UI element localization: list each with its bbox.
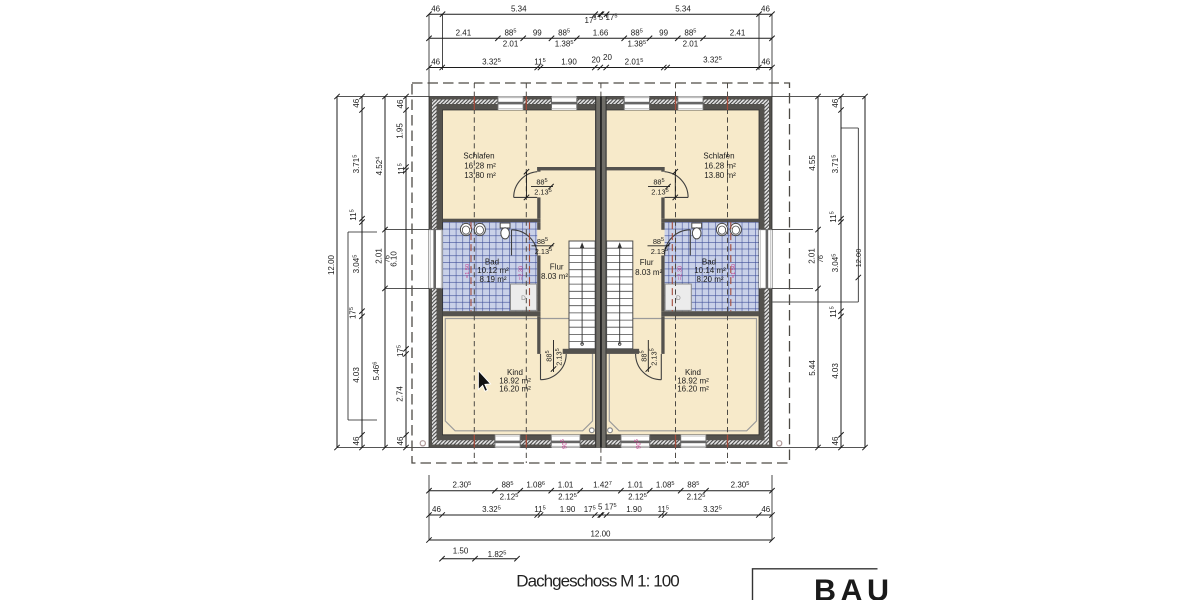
- svg-text:46: 46: [761, 58, 770, 67]
- svg-text:Flur: Flur: [640, 258, 654, 267]
- svg-text:2.01: 2.01: [503, 40, 519, 49]
- svg-text:Schlafen: Schlafen: [703, 152, 734, 161]
- svg-text:99: 99: [533, 28, 542, 37]
- svg-text:1.01: 1.01: [558, 480, 574, 489]
- svg-text:46: 46: [352, 98, 361, 107]
- svg-text:46: 46: [396, 436, 405, 445]
- svg-text:46: 46: [432, 505, 441, 514]
- svg-text:12.00: 12.00: [327, 254, 336, 275]
- svg-text:13.80 m²: 13.80 m²: [704, 171, 736, 180]
- svg-text:BAU: BAU: [814, 574, 894, 600]
- svg-text:2.74: 2.74: [396, 386, 405, 402]
- svg-text:8.03 m²: 8.03 m²: [635, 268, 662, 277]
- svg-text:2.41: 2.41: [456, 28, 472, 37]
- svg-text:=2.30: =2.30: [519, 266, 525, 280]
- svg-text:46: 46: [761, 5, 770, 14]
- svg-text:4.03: 4.03: [831, 363, 840, 379]
- svg-text:2.01: 2.01: [375, 248, 384, 264]
- svg-text:20: 20: [592, 56, 601, 65]
- svg-text:1.66: 1.66: [593, 28, 609, 37]
- svg-text:16.20 m²: 16.20 m²: [677, 385, 709, 394]
- svg-text:6.10: 6.10: [390, 251, 399, 267]
- svg-text:10.12 m²: 10.12 m²: [477, 266, 509, 275]
- svg-text:1.90: 1.90: [560, 505, 576, 514]
- svg-text:20: 20: [603, 53, 612, 62]
- svg-text:Dachgeschoss M 1: 100: Dachgeschoss M 1: 100: [516, 572, 679, 591]
- svg-text:1.90: 1.90: [626, 505, 642, 514]
- svg-text:4.55: 4.55: [808, 155, 817, 171]
- svg-text:Bad: Bad: [485, 257, 499, 266]
- svg-text:Flur: Flur: [550, 263, 564, 272]
- svg-text:2.01: 2.01: [683, 40, 699, 49]
- svg-text:99: 99: [659, 28, 668, 37]
- svg-text:46: 46: [831, 98, 840, 107]
- svg-text:12.00: 12.00: [590, 530, 611, 539]
- svg-text:16.20 m²: 16.20 m²: [499, 385, 531, 394]
- svg-text:5.44: 5.44: [808, 360, 817, 376]
- svg-text:46: 46: [352, 436, 361, 445]
- svg-text:16.28 m²: 16.28 m²: [704, 161, 736, 170]
- svg-text:1.95: 1.95: [396, 123, 405, 139]
- svg-text:8.19 m²: 8.19 m²: [479, 275, 506, 284]
- svg-text:76: 76: [818, 255, 825, 263]
- svg-text:8.20 m²: 8.20 m²: [696, 275, 723, 284]
- svg-text:1.01: 1.01: [628, 480, 644, 489]
- svg-text:5.34: 5.34: [511, 5, 527, 14]
- svg-text:2.41: 2.41: [730, 28, 746, 37]
- svg-text:46: 46: [396, 99, 405, 108]
- svg-text:4.03: 4.03: [352, 367, 361, 383]
- svg-text:2.01: 2.01: [808, 248, 817, 264]
- svg-text:1.50: 1.50: [453, 547, 469, 556]
- svg-text:Bad: Bad: [702, 257, 716, 266]
- svg-text:10.14 m²: 10.14 m²: [694, 266, 726, 275]
- svg-text:1.90: 1.90: [561, 58, 577, 67]
- svg-text:46: 46: [831, 436, 840, 445]
- svg-text:=1.50: =1.50: [731, 264, 737, 278]
- svg-text:D: D: [521, 295, 526, 302]
- svg-text:8.03 m²: 8.03 m²: [541, 272, 568, 281]
- svg-text:Schlafen: Schlafen: [463, 152, 494, 161]
- svg-text:46: 46: [431, 5, 440, 14]
- svg-text:46: 46: [431, 58, 440, 67]
- svg-text:=1.50: =1.50: [465, 264, 471, 278]
- svg-text:16.28 m²: 16.28 m²: [464, 161, 496, 170]
- svg-text:13.80 m²: 13.80 m²: [464, 171, 496, 180]
- svg-text:46: 46: [761, 505, 770, 514]
- svg-text:D: D: [676, 295, 681, 302]
- svg-text:=2.30: =2.30: [677, 266, 683, 280]
- svg-text:5.34: 5.34: [675, 5, 691, 14]
